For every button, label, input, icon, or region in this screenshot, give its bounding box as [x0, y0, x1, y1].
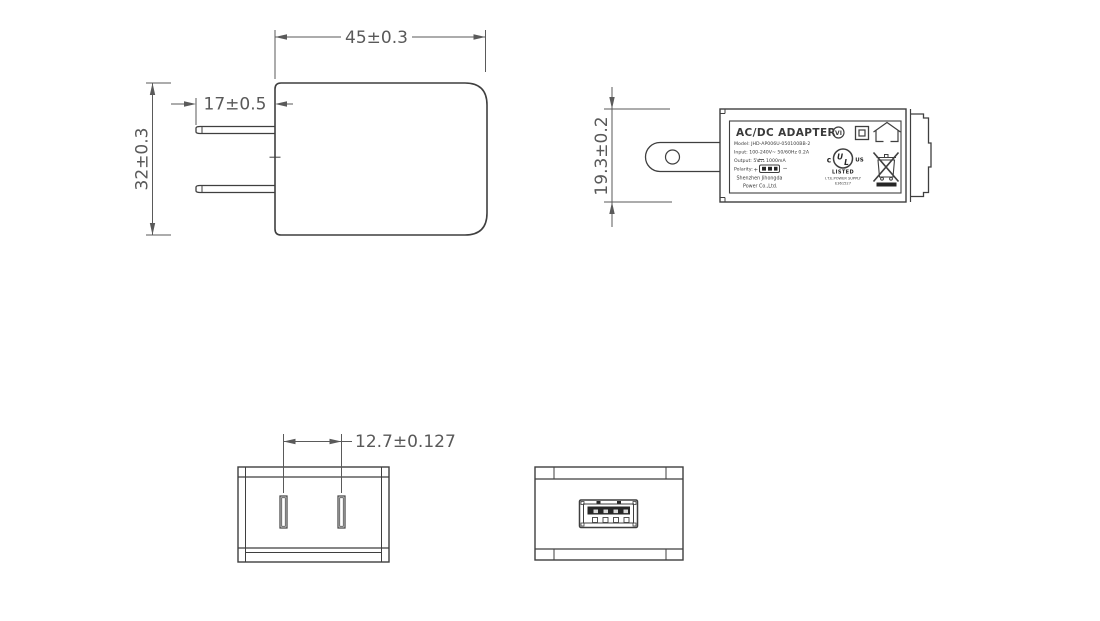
efficiency-vi-text: VI — [835, 130, 842, 137]
dim-width-text: 45±0.3 — [345, 28, 408, 48]
dim-width: 45±0.3 — [275, 28, 486, 79]
dim-thickness-text: 19.3±0.2 — [592, 116, 612, 195]
dim-prong-spacing: 12.7±0.127 — [284, 432, 456, 493]
adapter-drawing-canvas: 45±0.3 17±0.5 32±0.3 — [0, 0, 1100, 621]
label-company-2: Power Co.,Ltd. — [743, 184, 777, 190]
ul-category-text: I.T.E.POWER SUPPLY — [825, 177, 862, 181]
dim-prong-length-text: 17±0.5 — [204, 95, 267, 115]
side-prong — [646, 143, 721, 172]
label-company-1: Shenzhen Jihongda — [737, 176, 783, 182]
technical-drawing-page: 45±0.3 17±0.5 32±0.3 — [0, 0, 1100, 621]
front-body-outline — [275, 83, 487, 235]
dim-prong-spacing-text: 12.7±0.127 — [355, 432, 456, 452]
side-view: 19.3±0.2 AC/DC ADAPTER Model: JHD-AP006U… — [592, 87, 931, 227]
ul-listed-icon: U L c US LISTED I.T.E.POWER SUPPLY E3615… — [825, 149, 864, 186]
product-label: AC/DC ADAPTER Model: JHD-AP006U-050100BB… — [730, 121, 902, 193]
label-output-current: 1000mA — [766, 158, 786, 164]
dim-height: 32±0.3 — [133, 83, 172, 235]
weee-icon — [874, 153, 899, 187]
front-view: 45±0.3 17±0.5 32±0.3 — [133, 28, 488, 235]
label-input: Input: 100-240V~ 50/60Hz 0.2A — [734, 150, 810, 156]
bottom-view: 12.7±0.127 — [238, 432, 456, 562]
ul-l-text: L — [844, 158, 849, 167]
usb-lower-tabs — [593, 518, 630, 523]
label-model: Model: JHD-AP006U-050100BB-2 — [734, 141, 810, 147]
usb-connector-icon — [760, 165, 780, 173]
class2-insulation-icon — [856, 127, 869, 140]
front-prong-top — [196, 127, 275, 134]
dim-height-text: 32±0.3 — [133, 128, 153, 191]
usb-top-tab-1 — [597, 501, 601, 504]
ul-file-text: E361527 — [835, 182, 851, 186]
label-polarity-minus: − — [783, 165, 788, 172]
label-title: AC/DC ADAPTER — [736, 127, 836, 139]
label-output: Output: 5V — [734, 158, 760, 164]
front-prong-bottom — [196, 186, 275, 193]
usb-top-tab-2 — [617, 501, 621, 504]
ul-u-text: U — [837, 153, 843, 162]
usb-port — [580, 500, 638, 528]
efficiency-vi-icon: VI — [833, 127, 844, 138]
label-polarity: Polarity: — [734, 167, 753, 173]
side-cap-outline — [911, 114, 932, 197]
dim-thickness: 19.3±0.2 — [592, 87, 672, 227]
side-prong-hole — [666, 150, 680, 164]
label-polarity-plus: + — [754, 168, 759, 174]
prong-slot-left — [280, 496, 287, 528]
ul-c-text: c — [827, 156, 831, 165]
prong-slot-right — [338, 496, 345, 528]
ul-listed-text: LISTED — [832, 170, 854, 176]
ul-us-text: US — [855, 158, 863, 164]
indoor-use-icon — [874, 123, 901, 142]
usb-end-view — [535, 467, 683, 560]
